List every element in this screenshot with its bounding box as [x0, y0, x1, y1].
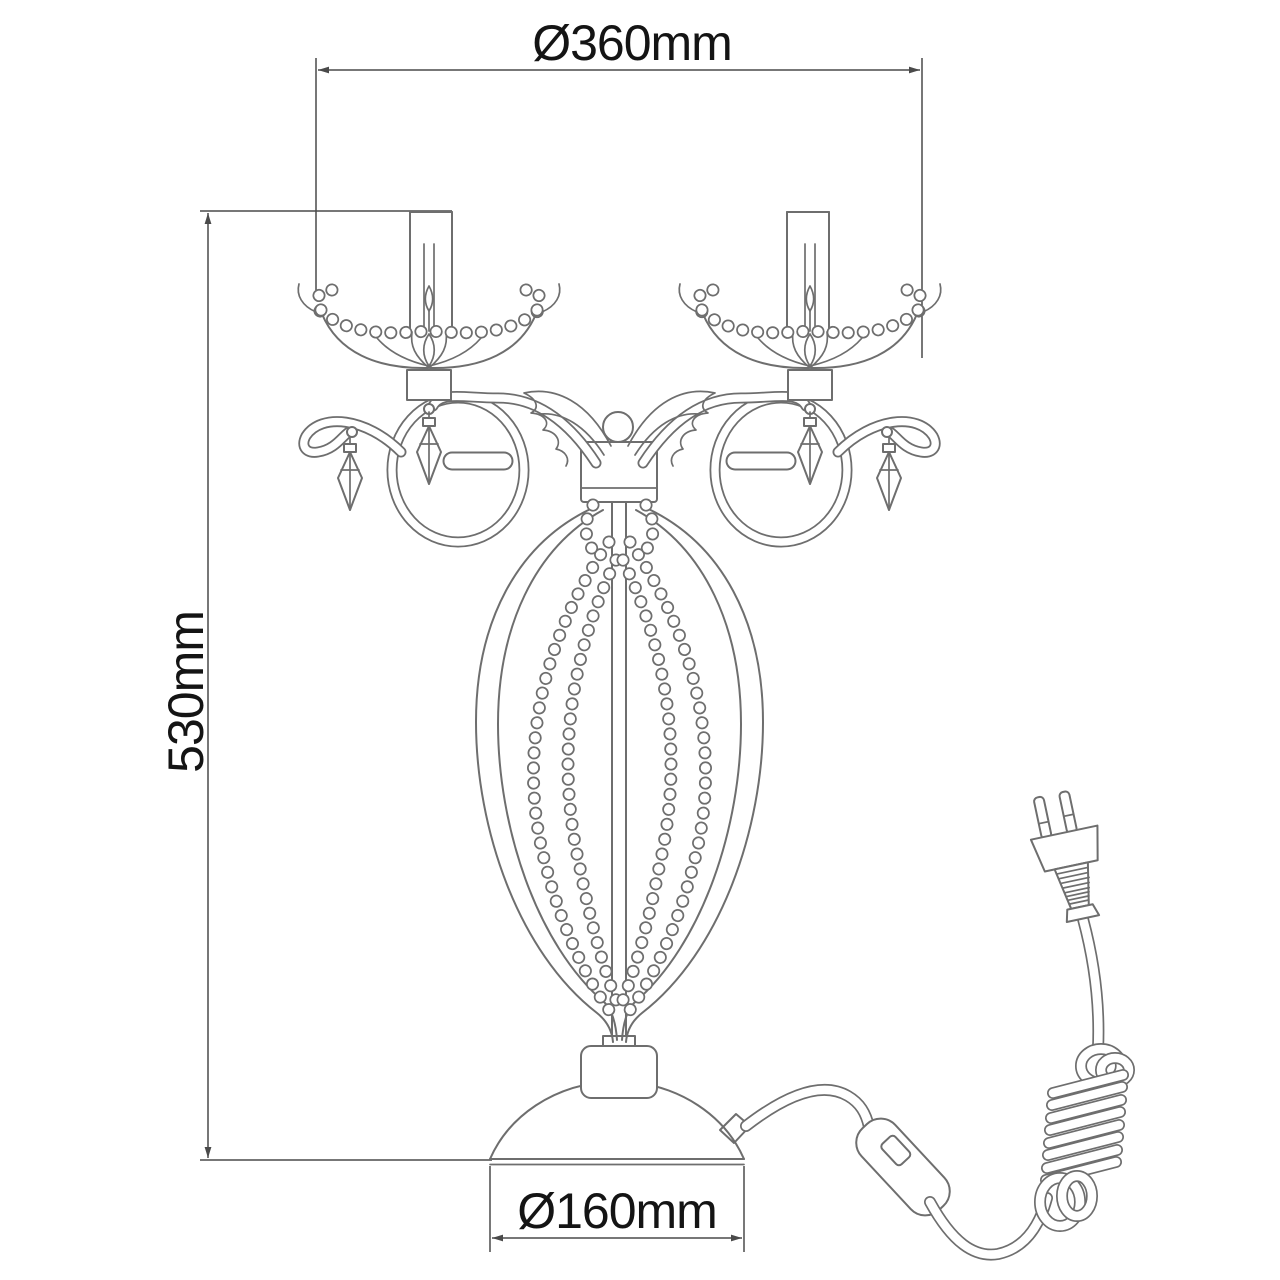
lamp-dimension-drawing: Ø360mm 530mm Ø160mm — [0, 0, 1280, 1280]
dimension-label-bottom: Ø160mm — [517, 1183, 717, 1239]
finial-ball — [603, 412, 633, 442]
technical-drawing-canvas: Ø360mm 530mm Ø160mm — [0, 0, 1280, 1280]
dimension-label-top: Ø360mm — [532, 15, 732, 71]
column-foot-plate — [603, 1036, 635, 1046]
dimension-label-left: 530mm — [158, 611, 214, 773]
base-collar — [581, 1046, 657, 1098]
